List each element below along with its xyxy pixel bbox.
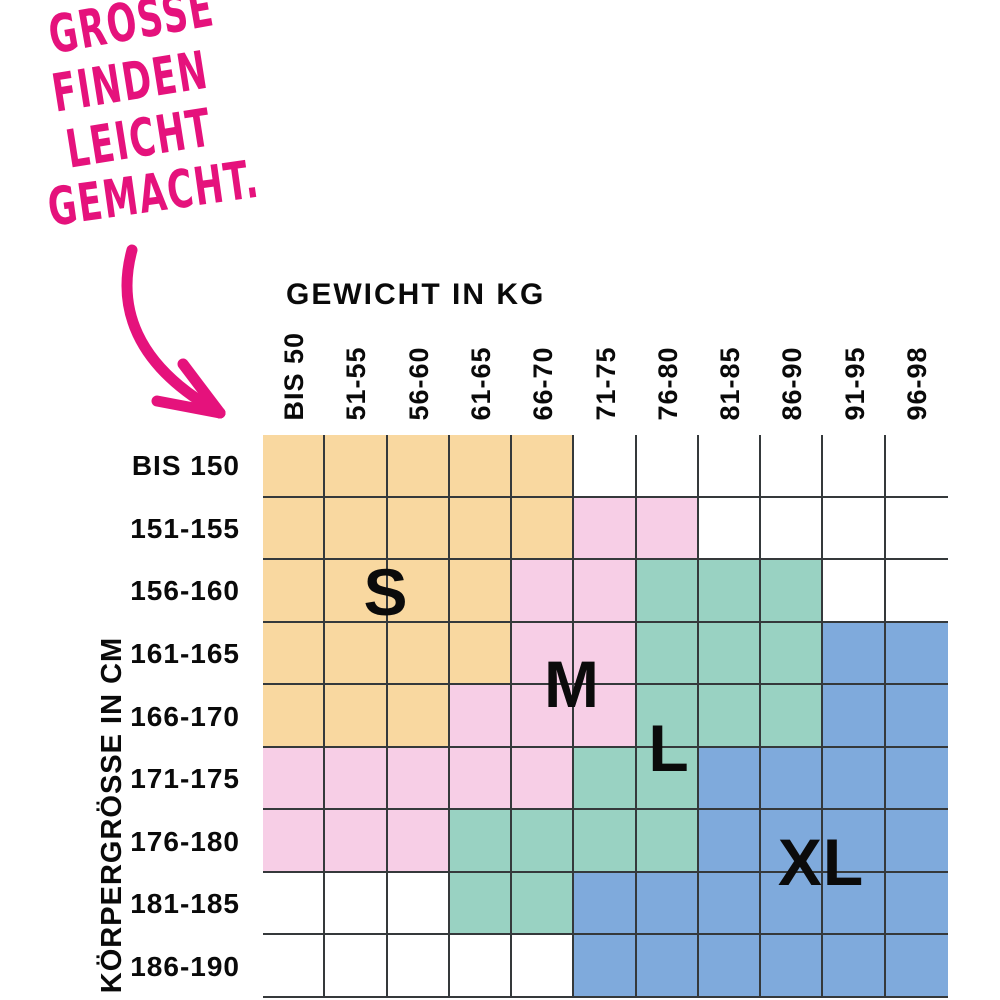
size-chart-infographic: GRÖSSE FINDEN LEICHT GEMACHT. GEWICHT IN… [0,0,1000,1000]
grid-cell-empty [823,435,885,498]
grid-cell-xl [699,873,761,936]
grid-cell-xl [886,623,948,686]
grid-cell-xl [761,748,823,811]
grid-cell-xl [637,935,699,998]
weight-col-label: 81-85 [715,316,745,421]
grid-cell-s [450,623,512,686]
grid-cell-s [325,435,387,498]
grid-cell-m [325,810,387,873]
grid-cell-empty [823,498,885,561]
grid-cell-empty [388,935,450,998]
grid-cell-xl [699,935,761,998]
size-label-s: S [363,554,408,630]
grid-cell-empty [761,435,823,498]
grid-cell-s [263,685,325,748]
grid-cell-m [388,810,450,873]
grid-cell-s [388,685,450,748]
height-row-label: 176-180 [20,825,240,859]
grid-cell-empty [823,560,885,623]
grid-cell-l [761,685,823,748]
grid-cell-empty [512,935,574,998]
grid-cell-xl [823,623,885,686]
grid-cell-m [637,498,699,561]
grid-cell-l [637,560,699,623]
grid-cell-empty [263,873,325,936]
grid-cell-empty [388,873,450,936]
weight-axis-title: GEWICHT IN KG [286,278,545,312]
grid-cell-l [574,748,636,811]
grid-cell-m [512,748,574,811]
grid-cell-xl [886,685,948,748]
grid-cell-m [263,748,325,811]
grid-cell-empty [761,498,823,561]
grid-cell-l [574,810,636,873]
grid-cell-m [450,685,512,748]
weight-col-label: 66-70 [528,316,558,421]
grid-cell-xl [761,935,823,998]
grid-cell-l [699,685,761,748]
grid-cell-s [388,498,450,561]
grid-cell-xl [823,935,885,998]
grid-cell-xl [823,748,885,811]
grid-cell-xl [886,748,948,811]
grid-cell-s [388,623,450,686]
grid-cell-empty [886,435,948,498]
grid-cell-l [512,873,574,936]
grid-cell-s [450,498,512,561]
weight-col-label: 96-98 [902,316,932,421]
grid-cell-empty [886,560,948,623]
curved-arrow-icon [95,235,235,430]
weight-col-label: 86-90 [777,316,807,421]
grid-cell-xl [823,685,885,748]
grid-cell-s [450,560,512,623]
grid-cell-xl [886,935,948,998]
grid-cell-l [512,810,574,873]
grid-cell-empty [325,873,387,936]
grid-cell-xl [574,873,636,936]
grid-cell-empty [699,498,761,561]
weight-col-label: 56-60 [404,316,434,421]
weight-col-label: 61-65 [466,316,496,421]
grid-cell-xl [637,873,699,936]
grid-cell-empty [574,435,636,498]
height-axis-title: KÖRPERGRÖSSE IN CM [96,625,128,1000]
grid-cell-empty [637,435,699,498]
height-row-label: 186-190 [20,950,240,984]
weight-col-label: BIS 50 [279,316,309,421]
grid-cell-l [637,623,699,686]
grid-cell-empty [450,935,512,998]
grid-cell-m [574,498,636,561]
grid-cell-s [388,435,450,498]
grid-cell-s [263,560,325,623]
grid-cell-m [574,560,636,623]
grid-cell-m [450,748,512,811]
grid-cell-l [761,623,823,686]
grid-cell-l [761,560,823,623]
height-row-label: 181-185 [20,887,240,921]
grid-cell-empty [263,935,325,998]
height-row-label: 156-160 [20,574,240,608]
grid-cell-s [325,498,387,561]
grid-cell-m [388,748,450,811]
grid-cell-m [263,810,325,873]
grid-cell-l [637,810,699,873]
height-row-label: BIS 150 [20,449,240,483]
grid-cell-xl [699,748,761,811]
grid-cell-empty [886,498,948,561]
grid-cell-m [512,560,574,623]
grid-cell-xl [699,810,761,873]
size-grid [263,435,948,998]
weight-col-label: 51-55 [341,316,371,421]
size-label-m: M [544,646,600,722]
grid-cell-l [450,810,512,873]
grid-cell-s [325,685,387,748]
grid-cell-m [325,748,387,811]
size-label-xl: XL [778,824,864,900]
weight-col-label: 76-80 [653,316,683,421]
grid-cell-empty [325,935,387,998]
size-label-l: L [648,710,689,786]
grid-cell-l [450,873,512,936]
height-row-label: 161-165 [20,637,240,671]
height-row-label: 166-170 [20,700,240,734]
grid-cell-s [450,435,512,498]
grid-cell-s [263,623,325,686]
height-row-label: 171-175 [20,762,240,796]
grid-cell-l [699,560,761,623]
grid-cell-s [263,435,325,498]
grid-cell-s [325,623,387,686]
grid-cell-xl [886,810,948,873]
grid-cell-s [512,498,574,561]
grid-cell-s [512,435,574,498]
height-row-label: 151-155 [20,512,240,546]
grid-cell-xl [574,935,636,998]
grid-cell-xl [886,873,948,936]
weight-col-label: 91-95 [840,316,870,421]
grid-cell-empty [699,435,761,498]
grid-cell-l [699,623,761,686]
weight-col-label: 71-75 [591,316,621,421]
grid-cell-s [263,498,325,561]
